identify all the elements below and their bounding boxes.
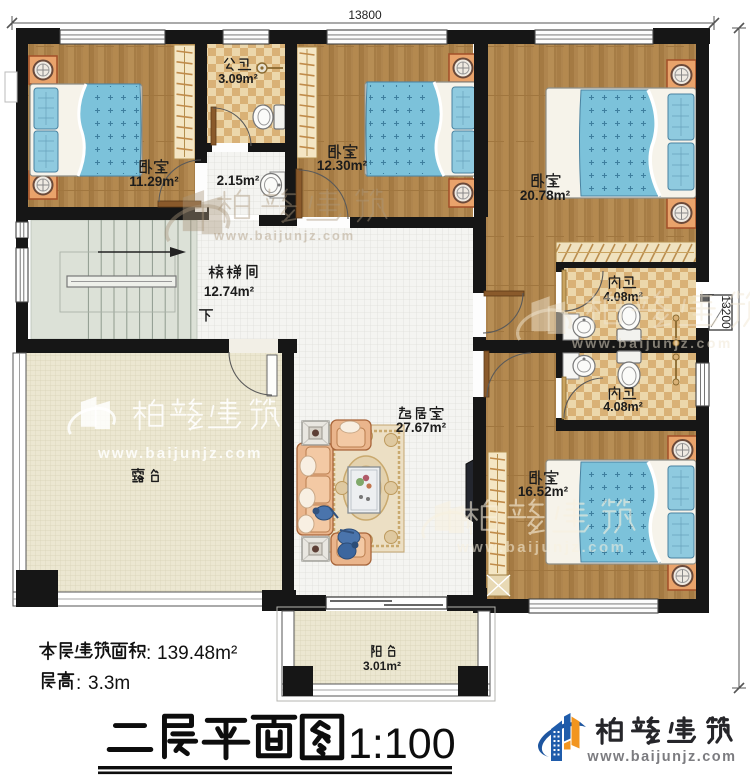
svg-text:139.48m²: 139.48m² xyxy=(157,643,237,664)
svg-text:2.15m²: 2.15m² xyxy=(217,173,260,188)
svg-text:www.baijunjz.com: www.baijunjz.com xyxy=(571,335,733,351)
svg-text:www.baijunjz.com: www.baijunjz.com xyxy=(97,445,263,462)
svg-text:www.baijunjz.com: www.baijunjz.com xyxy=(213,228,355,243)
svg-text:3.3m: 3.3m xyxy=(88,673,130,694)
svg-text:3.01m²: 3.01m² xyxy=(363,659,401,673)
svg-text:1:100: 1:100 xyxy=(348,720,456,768)
svg-text:4.08m²: 4.08m² xyxy=(603,400,643,414)
svg-text:27.67m²: 27.67m² xyxy=(396,420,447,435)
svg-text:12.74m²: 12.74m² xyxy=(204,284,255,299)
svg-text:www.baijunjz.com: www.baijunjz.com xyxy=(586,749,736,765)
svg-text:13200: 13200 xyxy=(719,295,733,329)
svg-text::: : xyxy=(76,673,81,694)
svg-text:3.09m²: 3.09m² xyxy=(218,72,258,86)
svg-text::: : xyxy=(146,643,151,664)
svg-text:13800: 13800 xyxy=(348,8,382,22)
svg-text:11.29m²: 11.29m² xyxy=(129,174,179,189)
svg-text:16.52m²: 16.52m² xyxy=(518,484,569,499)
svg-text:12.30m²: 12.30m² xyxy=(317,158,368,173)
svg-text:20.78m²: 20.78m² xyxy=(520,188,571,203)
svg-text:www.baijunjz.com: www.baijunjz.com xyxy=(456,539,626,556)
